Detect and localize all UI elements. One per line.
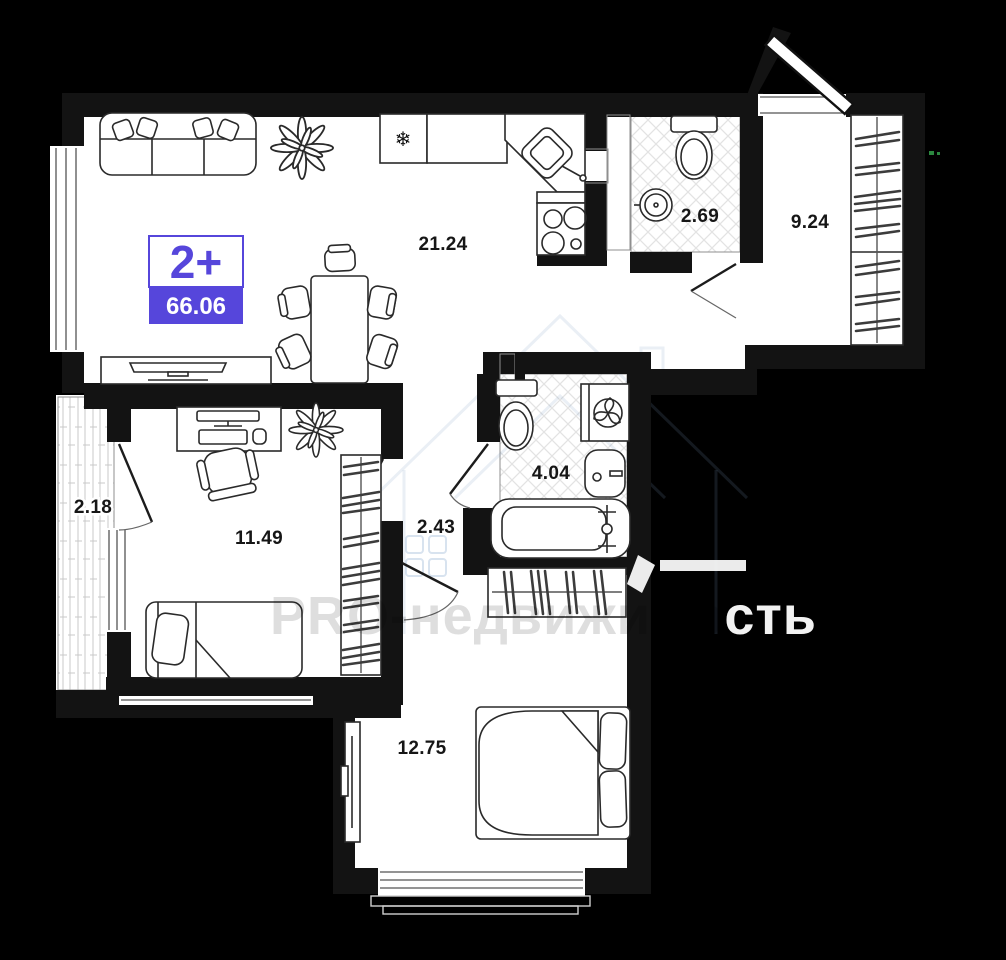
bath-toilet-icon: [496, 380, 537, 450]
snowflake-icon: ❄: [395, 127, 412, 151]
balcony-window: [105, 528, 133, 632]
watermark-text: PRO-недвижимость: [270, 586, 817, 646]
desk: [177, 407, 281, 451]
sofa: [100, 113, 256, 175]
watermark-text-muted: PRO-недвижимо: [270, 586, 724, 646]
label-bedroom-master: 12.75: [397, 738, 446, 759]
keyboard-icon: [199, 430, 247, 444]
tv-icon: [130, 363, 226, 372]
label-wc: 2.69: [681, 206, 719, 227]
living-window: [50, 146, 86, 352]
watermark-text-bright: сть: [724, 586, 817, 646]
label-bathroom: 4.04: [532, 463, 570, 484]
badge-area-value: 66.06: [166, 293, 226, 320]
watermark-bar: [660, 560, 746, 571]
double-bed: [476, 707, 630, 839]
plant-icon-2: [289, 403, 343, 457]
bedroom1-window: [119, 696, 313, 705]
badge-rooms-label: 2+: [170, 236, 222, 288]
stove-icon: [537, 203, 586, 255]
area-badge: 2+ 66.06: [149, 236, 243, 324]
washing-machine-icon: [581, 384, 629, 441]
label-hallway: 2.43: [417, 517, 455, 538]
label-entry-hall: 9.24: [791, 212, 829, 233]
label-balcony: 2.18: [74, 497, 112, 518]
plant-icon: [271, 117, 333, 179]
label-living-kitchen: 21.24: [418, 234, 467, 255]
bath-basin-icon: [585, 450, 625, 497]
mouse-icon: [253, 429, 266, 444]
floor-plan-svg: ❄: [0, 0, 1006, 960]
entry-wardrobe: [851, 115, 903, 345]
floor-plan: ❄: [0, 0, 1006, 960]
tv-console: [101, 357, 271, 384]
label-bedroom-small: 11.49: [235, 528, 283, 549]
bathtub-icon: [491, 499, 630, 558]
monitor-icon: [197, 411, 259, 421]
